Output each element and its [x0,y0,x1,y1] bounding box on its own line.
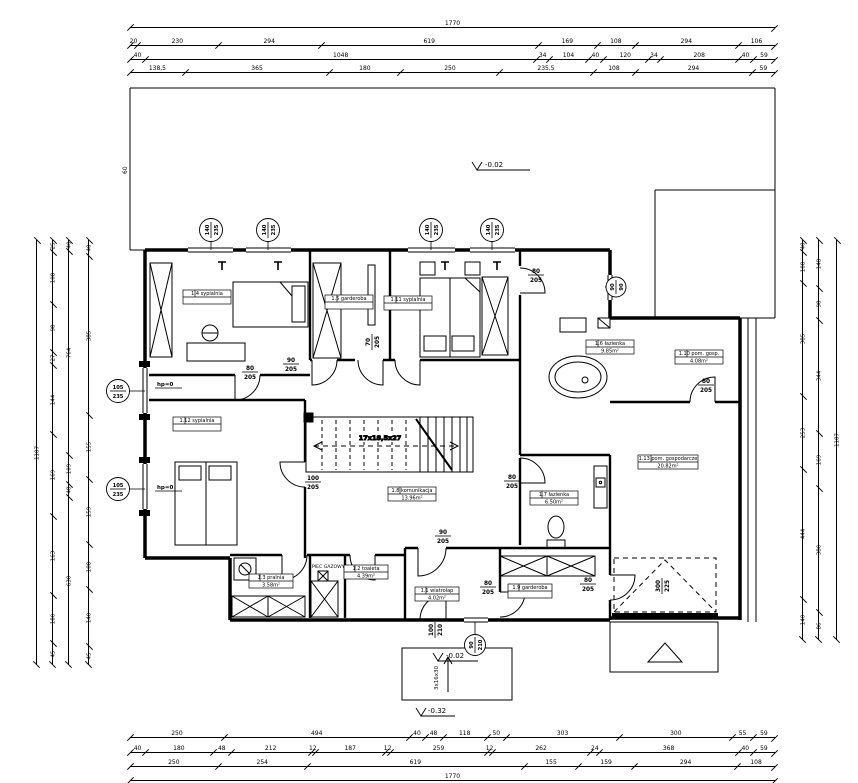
svg-text:6.50m²: 6.50m² [545,499,563,505]
svg-text:-0.02: -0.02 [446,652,464,660]
svg-text:1.1 wiatrołap: 1.1 wiatrołap [421,588,454,594]
svg-text:80: 80 [484,581,492,587]
hp-labels: hp=0 hp=0 [155,382,182,491]
stairs: 17x18,5x27 [304,413,473,472]
svg-text:1.3 pralnia: 1.3 pralnia [258,575,285,581]
bed-midleft [175,462,237,545]
svg-text:235: 235 [495,224,501,235]
svg-text:hp=0: hp=0 [157,485,173,491]
furnace-label: PIEC GAZOWY [312,564,345,570]
svg-text:205: 205 [307,485,319,491]
radiator [598,318,610,328]
vent-symbols [218,262,501,270]
svg-text:235: 235 [271,224,277,235]
svg-text:140: 140 [205,224,211,235]
svg-text:13.96m²: 13.96m² [401,495,422,501]
svg-text:4.08m²: 4.08m² [690,358,708,364]
room-label: 1.5 garderoba [325,295,373,309]
svg-text:1.4 sypialnia: 1.4 sypialnia [191,291,223,297]
svg-text:140: 140 [425,224,431,235]
svg-text:90: 90 [439,530,447,536]
svg-text:90: 90 [610,283,616,291]
svg-text:1.2 toaleta: 1.2 toaleta [352,566,379,572]
svg-text:205: 205 [285,367,297,373]
svg-text:205: 205 [482,590,494,596]
svg-text:1.10 pom. gosp.: 1.10 pom. gosp. [679,351,720,357]
toilet [547,516,565,548]
svg-text:hp=0: hp=0 [157,382,173,388]
room-label: 1.11 sypialnia [384,296,432,310]
level-terrace: -0.02 [472,161,530,170]
svg-text:210: 210 [478,639,484,650]
svg-text:205: 205 [530,278,542,284]
svg-text:9.85m²: 9.85m² [601,348,619,354]
svg-text:205: 205 [582,587,594,593]
svg-text:90: 90 [469,641,475,649]
bed-topleft [233,282,308,327]
svg-text:205: 205 [437,539,449,545]
floor-plan-drawing: 17x18,5x27 [0,0,858,783]
svg-text:235: 235 [434,224,440,235]
svg-text:205: 205 [375,336,381,348]
svg-text:-0.02: -0.02 [485,161,503,169]
room-label: 1.13 pom. gospodarcze20.82m² [638,455,698,469]
svg-text:4.02m²: 4.02m² [428,595,446,601]
svg-text:3.58m²: 3.58m² [262,582,280,588]
desk-chair [187,325,245,361]
room-label: 1.10 pom. gosp.4.08m² [675,350,723,364]
svg-text:1.12 sypialnia: 1.12 sypialnia [180,418,215,424]
svg-text:90: 90 [287,358,295,364]
door-arcs [235,268,715,620]
svg-text:140: 140 [486,224,492,235]
room-label: 1.4 sypialnia [183,290,231,304]
svg-text:100: 100 [429,624,435,636]
svg-text:1.7 łazienka: 1.7 łazienka [539,492,569,498]
room-label: 1.2 toaleta4.39m² [344,565,388,579]
room-label: 1.7 łazienka6.50m² [530,491,578,505]
svg-text:205: 205 [700,388,712,394]
svg-text:70: 70 [366,338,372,346]
svg-text:-0.32: -0.32 [428,707,446,715]
svg-text:100: 100 [307,476,319,482]
level-outside: -0.32 [416,707,455,716]
svg-text:235: 235 [214,224,220,235]
dim-60: 60 [122,166,129,174]
svg-text:205: 205 [244,375,256,381]
svg-text:4.39m²: 4.39m² [357,573,375,579]
svg-text:235: 235 [113,492,124,498]
room-label: 1.6 łazienka9.85m² [586,340,634,354]
floor-plan-page: 1770 20230294619169108294106 40104834104… [0,0,858,783]
svg-text:80: 80 [702,379,710,385]
svg-text:20.82m²: 20.82m² [657,463,678,469]
room-label: 1.1 wiatrołap4.02m² [415,587,459,601]
svg-text:1.8 komunikacja: 1.8 komunikacja [392,488,433,494]
svg-text:1.6 łazienka: 1.6 łazienka [595,341,625,347]
svg-text:80: 80 [584,578,592,584]
svg-text:1.11 sypialnia: 1.11 sypialnia [391,297,426,303]
room-label: 1.8 komunikacja13.96m² [388,487,436,501]
steps-label: 3x16x30 [434,665,440,690]
svg-text:80: 80 [246,366,254,372]
svg-text:1.9 garderoba: 1.9 garderoba [512,585,547,591]
annotations: -0.02 -0.02 -0.32 3x16x30 PIEC GAZOWY hp… [122,161,530,716]
bath-cabinet [594,466,607,508]
svg-text:105: 105 [113,483,124,489]
stairs-label: 17x18,5x27 [359,434,402,442]
svg-text:105: 105 [113,385,124,391]
room-label: 1.9 garderoba [508,584,552,598]
svg-text:90: 90 [619,283,625,291]
svg-text:300: 300 [656,580,662,592]
svg-text:235: 235 [113,394,124,400]
svg-text:140: 140 [262,224,268,235]
svg-text:1.13 pom. gospodarcze: 1.13 pom. gospodarcze [639,456,698,462]
bathtub [549,356,607,398]
svg-text:80: 80 [532,269,540,275]
svg-text:205: 205 [506,484,518,490]
svg-text:210: 210 [438,624,444,636]
room-label: 1.3 pralnia3.58m² [249,574,293,588]
svg-text:225: 225 [665,580,671,592]
sink [560,318,586,332]
svg-text:80: 80 [508,475,516,481]
svg-text:1.5 garderoba: 1.5 garderoba [331,296,366,302]
room-label: 1.12 sypialnia [173,417,221,431]
